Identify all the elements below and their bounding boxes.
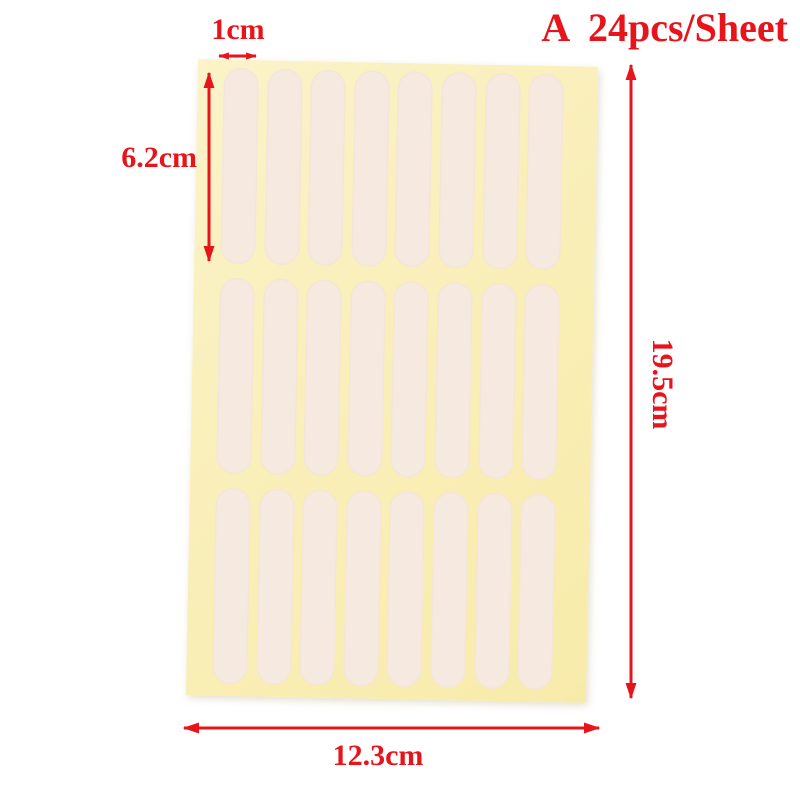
sticker-sheet [186,59,598,703]
sticker-pill [478,283,517,480]
sticker-row [216,278,560,480]
sticker-pill [517,493,556,690]
sticker-row [220,68,564,270]
sticker-pill [395,71,434,268]
sticker-pill [343,490,382,687]
sticker-pill [303,279,342,476]
sticker-grid [212,68,564,690]
dim-label-sheet-height: 19.5cm [647,324,677,444]
sticker-pill [264,69,303,266]
dim-label-sticker-height: 6.2cm [85,143,197,173]
sticker-pill [434,282,473,479]
sticker-pill [482,73,521,270]
sticker-pill [212,488,251,685]
sticker-pill [220,68,259,265]
sticker-pill [430,492,469,689]
sticker-pill [387,491,426,688]
sticker-pill [525,74,564,271]
sticker-pill [351,70,390,267]
sticker-pill [438,72,477,269]
sticker-pill [216,278,255,475]
sticker-pill [391,281,430,478]
sticker-pill [474,493,513,690]
title-pieces-per-sheet: A 24pcs/Sheet [541,8,788,48]
sticker-pill [299,489,338,686]
sticker-pill [521,284,560,481]
sticker-pill [256,488,295,685]
sticker-row [212,488,556,690]
sticker-pill [260,279,299,476]
sticker-pill [347,280,386,477]
sticker-pill [307,69,346,266]
product-dimension-image: A 24pcs/Sheet 1cm 6.2cm 19.5cm 12.3cm [0,0,800,800]
dim-label-sticker-width: 1cm [193,15,283,45]
dim-label-sheet-width: 12.3cm [308,741,448,771]
